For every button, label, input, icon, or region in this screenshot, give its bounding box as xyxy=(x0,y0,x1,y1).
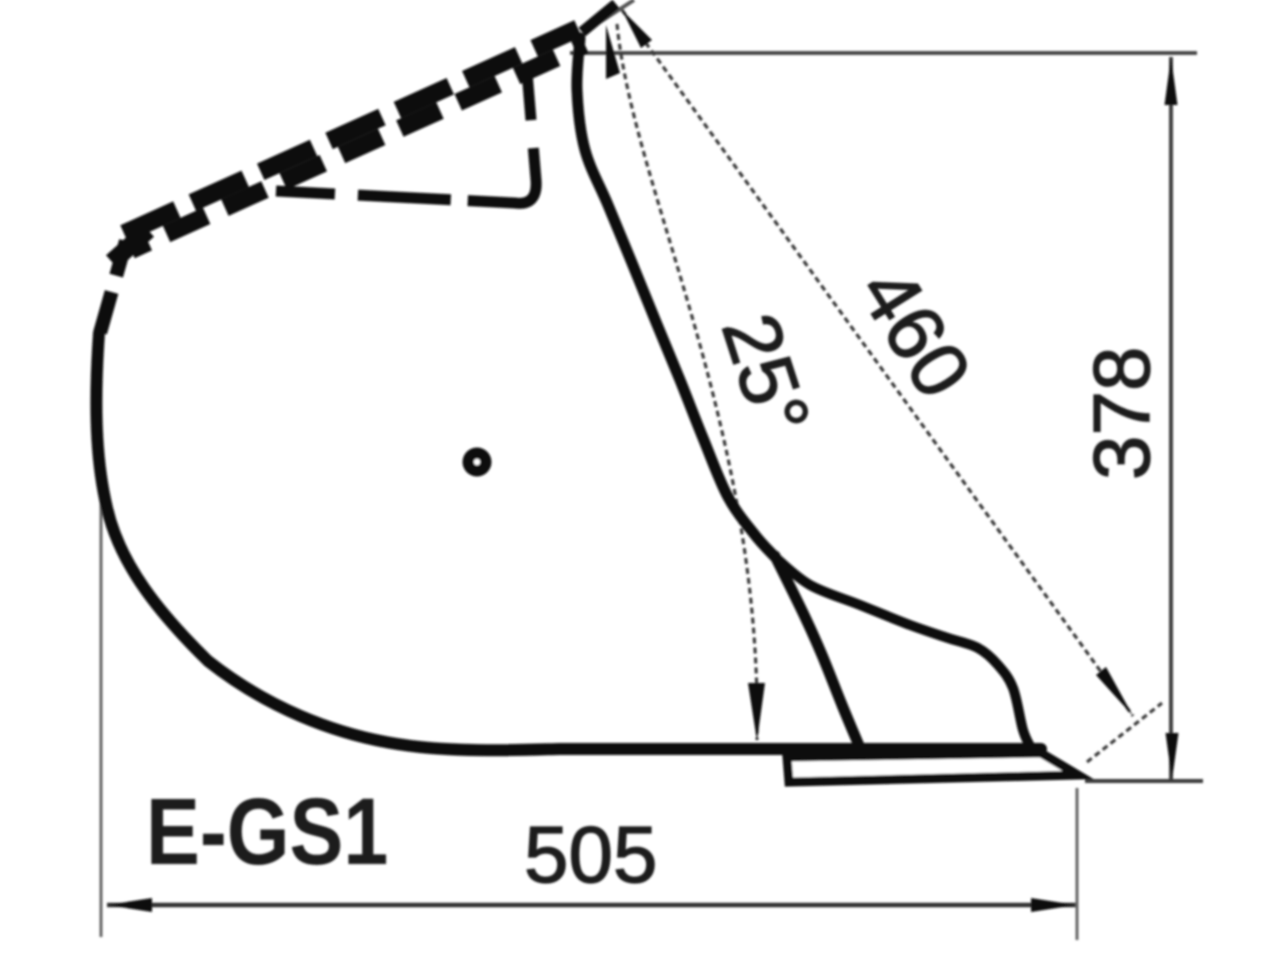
svg-text:378: 378 xyxy=(1077,347,1166,480)
svg-text:E-GS1: E-GS1 xyxy=(146,778,388,885)
svg-text:505: 505 xyxy=(524,810,657,899)
